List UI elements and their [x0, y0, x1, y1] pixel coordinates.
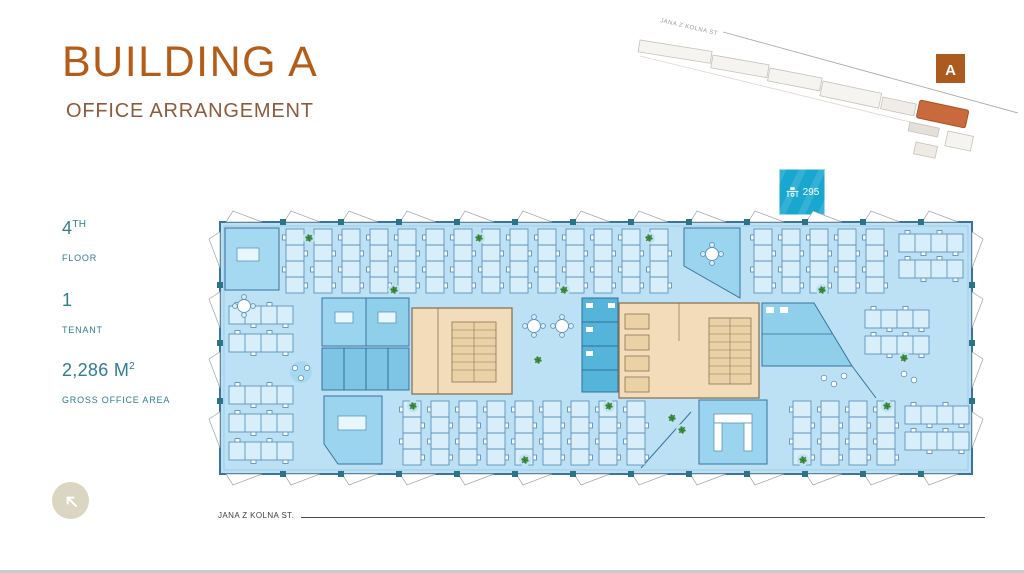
street-line: [301, 517, 985, 518]
workstations-count: 295: [803, 187, 820, 198]
slide-canvas: BUILDING A OFFICE ARRANGEMENT 4TH FLOOR …: [0, 0, 1024, 573]
stat-tenant-value: 1: [62, 290, 72, 310]
stat-floor-label: FLOOR: [62, 253, 97, 263]
stat-area-value: 2,286 M: [62, 360, 129, 380]
page-title: BUILDING A: [62, 38, 318, 87]
street-name-label: JANA Z KOLNA ST.: [218, 511, 294, 520]
stat-floor-value: 4: [62, 218, 72, 238]
back-button[interactable]: [52, 482, 89, 519]
minimap-building-a-label: A: [945, 62, 956, 79]
minimap-buildings: [638, 40, 973, 158]
floor-plan: [204, 206, 988, 492]
minimap-building-a-marker[interactable]: A: [936, 54, 965, 83]
stat-floor-sup: TH: [72, 219, 86, 230]
page-subtitle: OFFICE ARRANGEMENT: [66, 100, 314, 123]
minimap-building-a-highlight[interactable]: [916, 100, 969, 128]
building-core-left: [412, 308, 512, 394]
desk-icon: [785, 186, 800, 199]
stat-area-label: GROSS OFFICE AREA: [62, 395, 170, 405]
stat-area: 2,286 M2 GROSS OFFICE AREA: [62, 360, 170, 405]
stat-floor: 4TH FLOOR: [62, 218, 97, 263]
site-minimap: JANA Z KOLNA ST A: [630, 0, 1024, 160]
stat-tenant: 1 TENANT: [62, 290, 103, 335]
minimap-street-label: JANA Z KOLNA ST: [660, 18, 719, 37]
stat-area-sup: 2: [129, 361, 135, 372]
stat-tenant-label: TENANT: [62, 325, 103, 335]
building-core-right: [619, 303, 759, 398]
arrow-up-left-icon: [61, 491, 81, 511]
